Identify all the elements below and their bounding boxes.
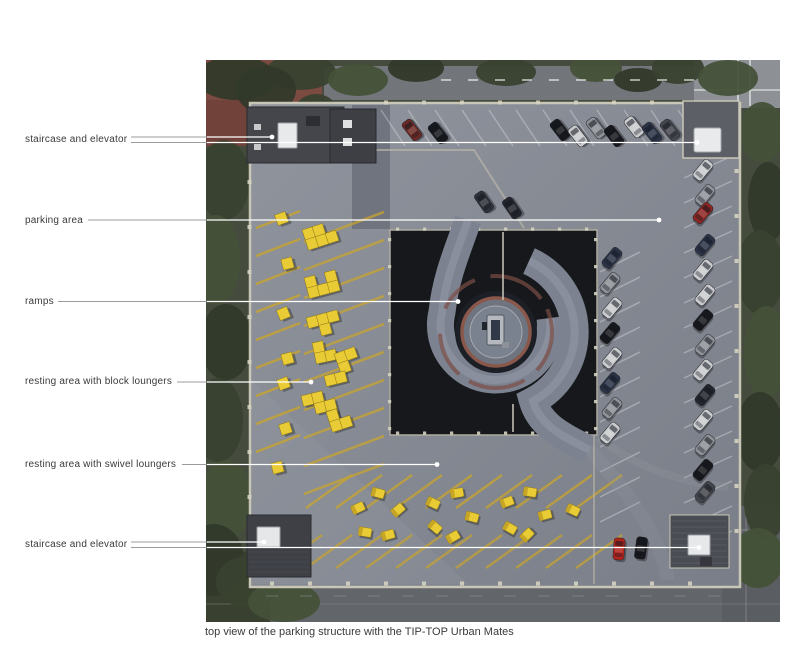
leader-dot bbox=[262, 540, 267, 545]
leader-lines bbox=[0, 0, 800, 656]
leader-dot bbox=[456, 299, 461, 304]
leader-dot bbox=[697, 545, 702, 550]
leader-dot bbox=[657, 218, 662, 223]
leader-dot bbox=[270, 135, 275, 140]
annotated-parking-diagram: staircase and elevator parking area ramp… bbox=[0, 0, 800, 656]
leader-dot bbox=[435, 462, 440, 467]
leader-dot bbox=[309, 380, 314, 385]
leader-dot bbox=[695, 140, 700, 145]
